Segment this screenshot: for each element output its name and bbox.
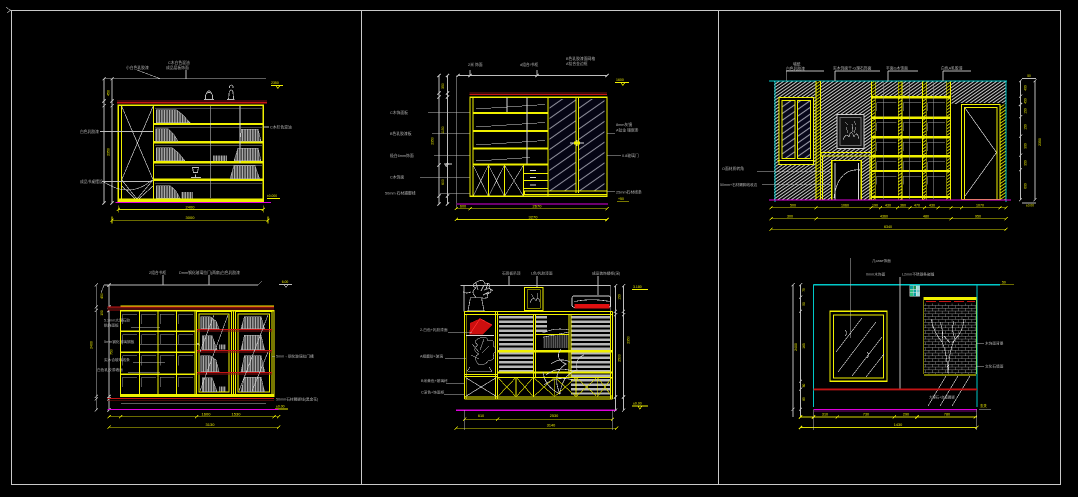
svg-text:165: 165 [802,343,806,349]
svg-text:2350: 2350 [107,148,111,156]
svg-text:310: 310 [822,413,828,417]
svg-text:290: 290 [903,413,909,417]
svg-text:360: 360 [900,204,906,208]
svg-text:d组合/书柜: d组合/书柜 [520,62,539,67]
svg-text:1430: 1430 [894,423,902,427]
svg-text:150: 150 [100,310,104,316]
svg-text:4360: 4360 [880,214,888,218]
svg-text:50: 50 [802,302,806,306]
svg-text:1060: 1060 [841,204,849,208]
svg-text:白色乳胶漆: 白色乳胶漆 [786,66,805,71]
svg-text:480: 480 [923,214,929,218]
svg-text:450: 450 [100,293,104,299]
svg-text:2350: 2350 [1038,138,1042,146]
svg-text:±0.00: ±0.00 [633,402,642,406]
svg-text:350: 350 [441,83,445,89]
svg-text:950: 950 [975,214,981,218]
svg-text:成品装饰矮柜(深): 成品装饰矮柜(深) [592,271,620,276]
svg-text:430: 430 [885,204,891,208]
svg-text:木饰面背景: 木饰面背景 [985,341,1004,346]
svg-text:6.00: 6.00 [282,280,289,284]
svg-text:25mm石材线条: 25mm石材线条 [616,190,642,195]
svg-text:±0.00: ±0.00 [276,405,285,409]
svg-text:C木白色混油: C木白色混油 [168,60,190,65]
svg-text:450: 450 [107,90,111,96]
svg-text:50: 50 [1027,74,1031,78]
svg-text:2670: 2670 [533,203,543,208]
svg-text:470: 470 [914,204,920,208]
svg-text:2500: 2500 [618,354,622,362]
svg-text:小白色乳胶漆: 小白色乳胶漆 [126,65,149,70]
svg-text:50mm 石材踢脚线: 50mm 石材踢脚线 [385,191,416,196]
svg-text:6340: 6340 [884,225,892,229]
svg-text:Dmm钢化玻璃拉门(两扇)白色乳胶漆: Dmm钢化玻璃拉门(两扇)白色乳胶漆 [179,270,240,275]
svg-text:150: 150 [1024,108,1028,114]
svg-text:极白6mm饰面: 极白6mm饰面 [390,153,414,158]
svg-text:大理石+台面踢脚: 大理石+台面踢脚 [929,395,955,400]
svg-text:B色乳胶漆板: B色乳胶漆板 [390,131,412,136]
svg-text:75: 75 [802,288,806,292]
svg-text:A钛合金边框: A钛合金边框 [566,61,588,66]
svg-text:2-白色+乳胶漆面: 2-白色+乳胶漆面 [420,327,448,332]
svg-text:50mm+石材踢脚线收边: 50mm+石材踢脚线收边 [720,182,758,187]
svg-text:1070: 1070 [976,204,984,208]
svg-text:C深色+饰面柜: C深色+饰面柜 [421,390,445,395]
svg-text:50mm石材踢脚线(黑金花): 50mm石材踢脚线(黑金花) [276,397,318,402]
svg-text:80: 80 [802,384,806,388]
svg-text:±0.00: ±0.00 [1026,204,1034,208]
svg-text:L色/乳胶漆面: L色/乳胶漆面 [531,271,553,276]
svg-text:3000: 3000 [186,215,196,220]
svg-text:A组磨砂+玻璃: A组磨砂+玻璃 [420,354,443,359]
svg-text:3270: 3270 [529,214,539,219]
svg-text:L2mm不锈钢条嵌缝: L2mm不锈钢条嵌缝 [902,272,935,277]
svg-text:墙纸: 墙纸 [793,62,801,67]
svg-text:150: 150 [618,294,622,300]
svg-text:50: 50 [1002,281,1006,285]
svg-text:190: 190 [872,204,878,208]
svg-text:石膏板吊顶: 石膏板吊顶 [502,271,521,276]
svg-text:300: 300 [1024,143,1028,149]
svg-text:400: 400 [1024,85,1028,91]
svg-text:白色A乳胶漆: 白色A乳胶漆 [941,66,963,71]
svg-text:300: 300 [787,214,793,218]
svg-text:2350: 2350 [271,81,279,85]
svg-text:5mm钢化玻璃搁板: 5mm钢化玻璃搁板 [104,339,135,344]
svg-text:成品层板饰面: 成品层板饰面 [166,65,189,70]
svg-text:C木饰面: C木饰面 [390,175,404,180]
svg-text:450: 450 [1024,98,1028,104]
svg-text:750: 750 [110,349,114,355]
svg-text:0mm木饰面: 0mm木饰面 [866,272,886,277]
svg-text:150: 150 [1024,124,1028,130]
svg-text:3140: 3140 [547,424,555,428]
svg-text:白色乳胶漆: 白色乳胶漆 [80,129,99,134]
svg-text:C木饰面板: C木饰面板 [390,110,408,115]
svg-text:1600: 1600 [616,78,624,82]
svg-text:玄关: 玄关 [980,403,987,408]
svg-text:平面G木饰面: 平面G木饰面 [886,66,908,71]
svg-text:白色乳胶漆墙面: 白色乳胶漆墙面 [97,367,123,372]
svg-text:1600: 1600 [202,411,212,416]
svg-text:粘饰面板: 粘饰面板 [104,323,119,328]
svg-text:2530: 2530 [550,414,558,418]
svg-text:600: 600 [1024,183,1028,189]
svg-text:600: 600 [460,204,466,208]
svg-text:430: 430 [929,204,935,208]
svg-text:780: 780 [944,413,950,417]
svg-text:±0.000: ±0.000 [267,194,277,198]
svg-text:1150: 1150 [441,126,445,133]
svg-text:2组合书柜: 2组合书柜 [149,270,167,275]
svg-text:610: 610 [478,414,484,418]
svg-text:+50: +50 [618,197,624,201]
svg-text:A钛金 镶嵌条: A钛金 镶嵌条 [616,128,639,133]
svg-text:C木栏色混油: C木栏色混油 [270,125,292,130]
svg-text:成品书桌摆设: 成品书桌摆设 [80,179,103,184]
svg-text:3130: 3130 [206,422,216,427]
svg-text:1530: 1530 [232,411,242,416]
svg-text:B米黄色+玻璃杯: B米黄色+玻璃杯 [421,378,448,383]
svg-text:2350: 2350 [627,336,631,344]
svg-text:文化石墙面: 文化石墙面 [985,364,1004,369]
svg-text:2米 饰面: 2米 饰面 [468,62,483,67]
svg-text:5.3mm大理石胶: 5.3mm大理石胶 [104,318,130,323]
svg-text:8mm灰镜: 8mm灰镜 [616,122,632,127]
svg-text:2400: 2400 [90,341,94,349]
svg-text:3.180: 3.180 [633,285,642,289]
svg-text:350: 350 [1024,160,1028,166]
svg-text:几case饰面: 几case饰面 [872,258,891,263]
svg-text:500: 500 [790,204,796,208]
svg-text:2400: 2400 [794,343,798,351]
svg-text:0.8玻璃门: 0.8玻璃门 [622,153,639,158]
svg-text:730: 730 [863,413,869,417]
svg-text:2400: 2400 [186,204,196,209]
svg-text:5mm→钢化玻璃拉门槽: 5mm→钢化玻璃拉门槽 [276,354,314,359]
svg-text:实木饰面干-G理石饰面: 实木饰面干-G理石饰面 [833,66,872,71]
svg-text:2350: 2350 [431,137,435,145]
svg-text:B色乳胶漆面网格: B色乳胶漆面网格 [566,56,595,61]
svg-text:600: 600 [441,179,445,185]
svg-text:85: 85 [802,397,806,401]
svg-text:O面材质转角: O面材质转角 [722,166,744,171]
svg-text:实木合玻璃线条: 实木合玻璃线条 [104,357,130,362]
